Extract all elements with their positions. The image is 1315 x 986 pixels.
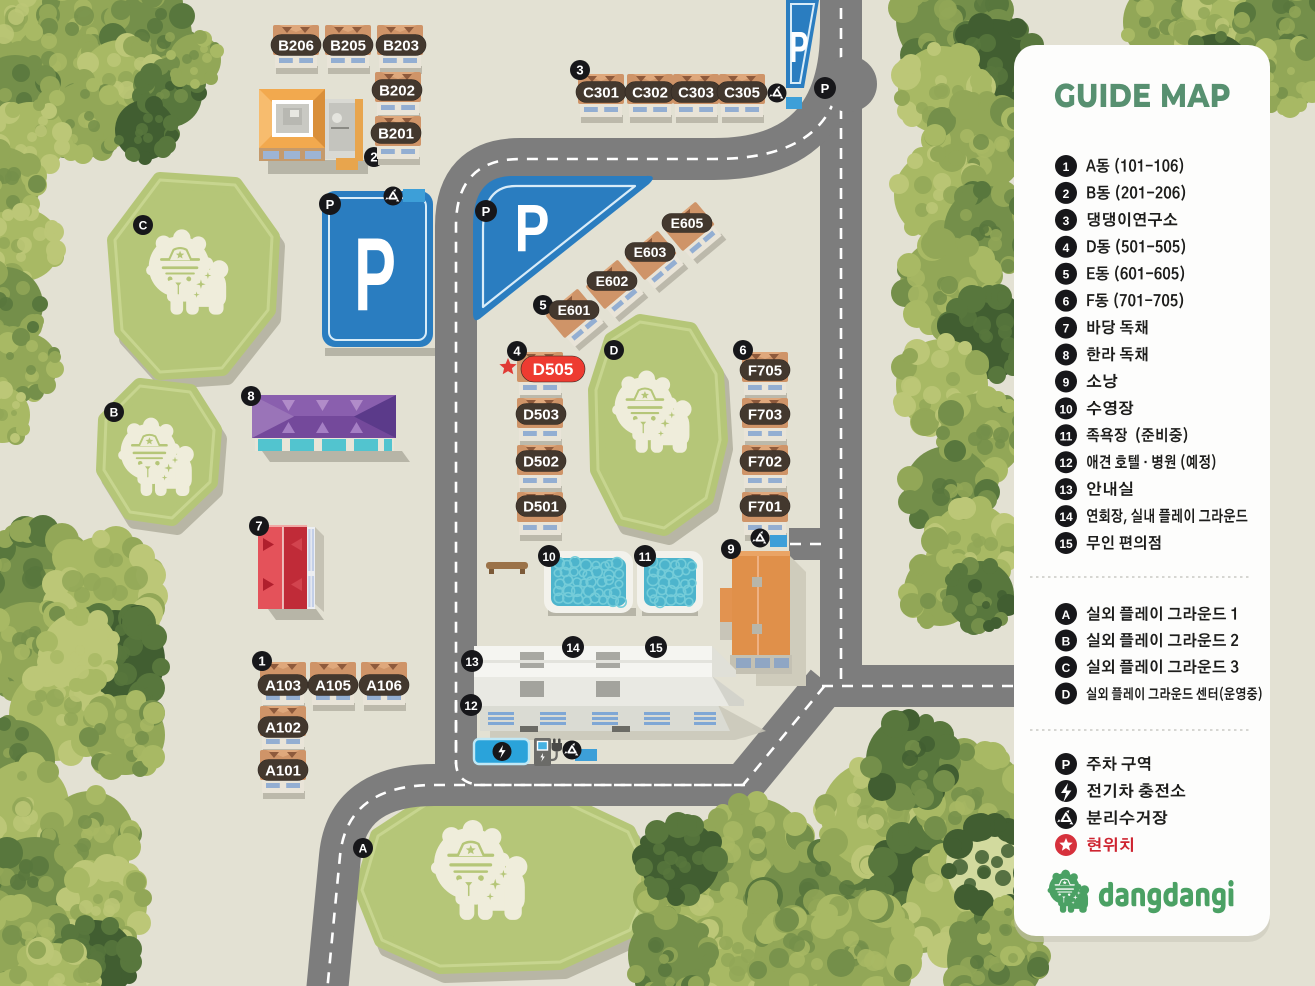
svg-text:D502: D502: [523, 453, 559, 470]
svg-text:15: 15: [649, 641, 663, 655]
svg-text:P: P: [1062, 757, 1071, 772]
svg-text:9: 9: [1063, 375, 1070, 389]
svg-text:5: 5: [539, 298, 546, 313]
svg-text:B: B: [1062, 635, 1071, 649]
svg-text:8: 8: [1063, 349, 1070, 363]
svg-text:6: 6: [1063, 295, 1070, 309]
svg-text:P: P: [821, 81, 830, 96]
svg-text:7: 7: [255, 519, 262, 534]
svg-text:E603: E603: [634, 244, 667, 260]
svg-text:A106: A106: [366, 677, 402, 694]
svg-text:D: D: [610, 344, 619, 358]
svg-text:9: 9: [727, 542, 734, 557]
svg-text:11: 11: [639, 550, 652, 564]
svg-text:1: 1: [1063, 160, 1070, 174]
svg-text:2: 2: [370, 150, 377, 165]
svg-text:4: 4: [1063, 241, 1070, 255]
svg-text:11: 11: [1060, 429, 1073, 443]
svg-text:C: C: [139, 219, 148, 233]
svg-text:A: A: [359, 842, 368, 856]
svg-text:F703: F703: [748, 406, 782, 423]
svg-text:A105: A105: [315, 677, 351, 694]
svg-text:12: 12: [1059, 456, 1073, 470]
svg-text:P: P: [790, 23, 809, 72]
svg-text:F702: F702: [748, 453, 782, 470]
svg-text:14: 14: [566, 641, 580, 655]
svg-text:P: P: [482, 204, 491, 219]
svg-text:C: C: [1062, 661, 1071, 675]
svg-text:A103: A103: [265, 677, 301, 694]
svg-text:P: P: [515, 191, 550, 266]
svg-text:7: 7: [1063, 322, 1070, 336]
svg-text:3: 3: [1063, 214, 1070, 228]
svg-text:C301: C301: [583, 84, 619, 101]
svg-text:F705: F705: [748, 362, 782, 379]
svg-text:A: A: [1062, 608, 1071, 622]
svg-text:A102: A102: [265, 719, 301, 736]
svg-text:10: 10: [1059, 402, 1073, 416]
svg-text:P: P: [354, 217, 396, 333]
svg-text:A101: A101: [265, 762, 301, 779]
svg-text:E601: E601: [558, 302, 591, 318]
svg-text:4: 4: [513, 344, 521, 359]
svg-text:D501: D501: [523, 498, 559, 515]
svg-text:E605: E605: [671, 215, 704, 231]
svg-text:14: 14: [1059, 510, 1073, 524]
svg-text:B206: B206: [278, 37, 314, 54]
svg-text:B: B: [110, 406, 119, 420]
svg-text:D505: D505: [533, 360, 574, 379]
svg-text:D: D: [1062, 688, 1071, 702]
svg-text:10: 10: [542, 550, 556, 564]
svg-text:E602: E602: [596, 273, 629, 289]
svg-text:B205: B205: [330, 37, 366, 54]
svg-text:B201: B201: [378, 125, 414, 142]
svg-text:2: 2: [1063, 187, 1070, 201]
svg-text:8: 8: [247, 389, 254, 404]
svg-text:5: 5: [1063, 268, 1070, 282]
svg-text:3: 3: [576, 63, 583, 78]
svg-text:B202: B202: [379, 82, 415, 99]
svg-text:C305: C305: [724, 84, 760, 101]
svg-text:F701: F701: [748, 498, 782, 515]
svg-text:C303: C303: [678, 84, 714, 101]
svg-text:P: P: [326, 197, 335, 212]
svg-text:B203: B203: [383, 37, 419, 54]
svg-text:1: 1: [258, 654, 265, 669]
svg-text:12: 12: [464, 699, 478, 713]
svg-text:15: 15: [1059, 537, 1073, 551]
svg-text:13: 13: [1059, 483, 1073, 497]
svg-text:D503: D503: [523, 406, 559, 423]
svg-text:6: 6: [739, 343, 746, 358]
svg-text:13: 13: [465, 655, 479, 669]
svg-text:C302: C302: [632, 84, 668, 101]
